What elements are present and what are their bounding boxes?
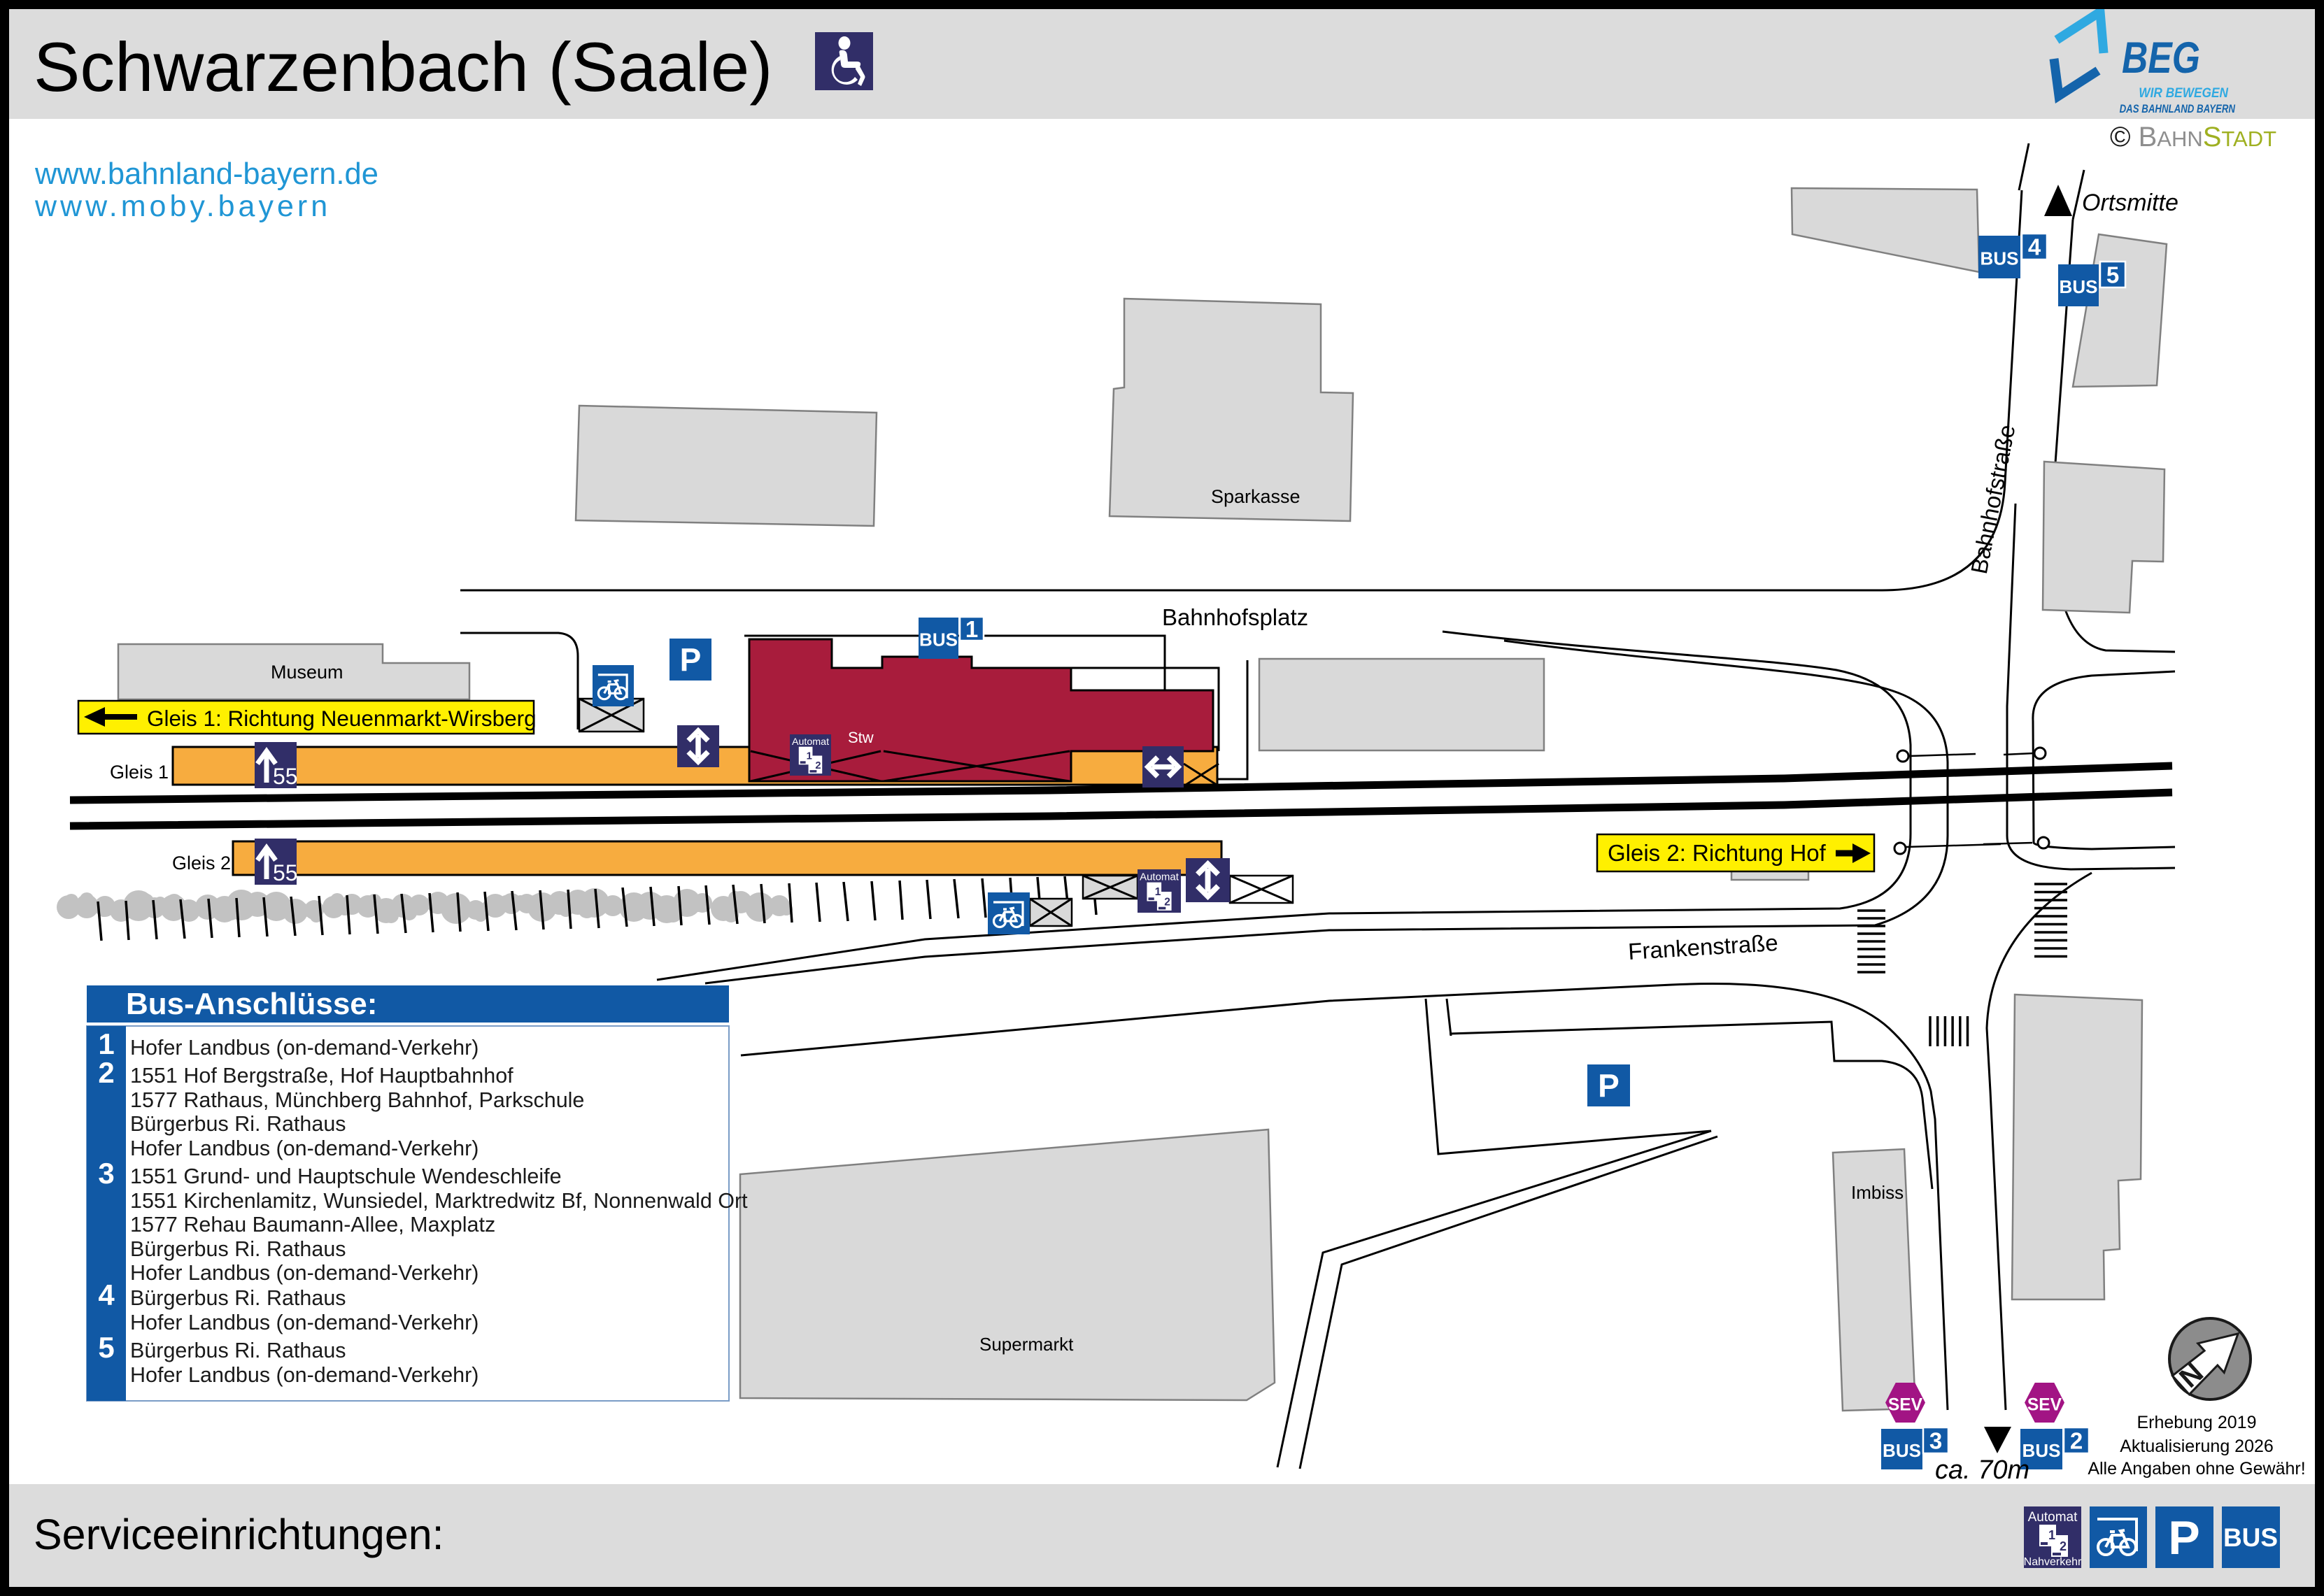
svg-text:1: 1: [1155, 886, 1161, 898]
svg-text:4: 4: [98, 1278, 115, 1311]
svg-text:© BAHNSTADT: © BAHNSTADT: [2110, 122, 2276, 152]
svg-text:Museum: Museum: [271, 662, 343, 683]
svg-text:Hofer Landbus (on-demand-Verke: Hofer Landbus (on-demand-Verkehr): [130, 1036, 479, 1060]
svg-text:Gleis 2: Richtung Hof: Gleis 2: Richtung Hof: [1608, 840, 1827, 866]
svg-text:1577 Rathaus, Münchberg Bahnho: 1577 Rathaus, Münchberg Bahnhof, Parksch…: [130, 1088, 584, 1112]
svg-text:Erhebung 2019: Erhebung 2019: [2137, 1413, 2257, 1432]
svg-text:Supermarkt: Supermarkt: [979, 1334, 1074, 1355]
svg-text:BUS: BUS: [1883, 1440, 1921, 1461]
svg-text:DAS BAHNLAND BAYERN: DAS BAHNLAND BAYERN: [2120, 103, 2236, 116]
svg-text:2: 2: [815, 760, 821, 771]
svg-text:Bürgerbus Ri. Rathaus: Bürgerbus Ri. Rathaus: [130, 1339, 346, 1362]
svg-text:Bürgerbus Ri. Rathaus: Bürgerbus Ri. Rathaus: [130, 1112, 346, 1136]
svg-text:1577 Rehau Baumann-Allee, Maxp: 1577 Rehau Baumann-Allee, Maxplatz: [130, 1213, 495, 1237]
svg-text:Schwarzenbach (Saale): Schwarzenbach (Saale): [34, 29, 772, 106]
svg-text:1: 1: [98, 1027, 114, 1060]
svg-text:Hofer Landbus (on-demand-Verke: Hofer Landbus (on-demand-Verkehr): [130, 1261, 479, 1285]
svg-text:Gleis 1: Gleis 1: [110, 762, 169, 783]
svg-text:Stw: Stw: [848, 729, 874, 746]
svg-text:Bürgerbus Ri. Rathaus: Bürgerbus Ri. Rathaus: [130, 1286, 346, 1310]
svg-text:55: 55: [273, 860, 298, 885]
svg-text:Bus-Anschlüsse:: Bus-Anschlüsse:: [126, 987, 377, 1021]
svg-text:Automat: Automat: [792, 736, 829, 748]
svg-text:Automat: Automat: [2028, 1510, 2078, 1525]
svg-text:www.bahnland-bayern.de: www.bahnland-bayern.de: [34, 157, 378, 191]
svg-text:Serviceeinrichtungen:: Serviceeinrichtungen:: [34, 1511, 444, 1558]
svg-text:Nahverkehr: Nahverkehr: [2024, 1556, 2082, 1568]
svg-text:SEV: SEV: [1888, 1395, 1923, 1414]
svg-text:Bahnhofsplatz: Bahnhofsplatz: [1162, 604, 1308, 630]
svg-text:1551 Kirchenlamitz, Wunsiedel,: 1551 Kirchenlamitz, Wunsiedel, Marktredw…: [130, 1189, 748, 1213]
svg-text:Sparkasse: Sparkasse: [1211, 486, 1301, 507]
svg-text:3: 3: [1929, 1428, 1942, 1454]
svg-text:BUS: BUS: [2060, 276, 2098, 297]
svg-text:1551 Hof Bergstraße, Hof Haupt: 1551 Hof Bergstraße, Hof Hauptbahnhof: [130, 1064, 513, 1088]
svg-text:Aktualisierung 2026: Aktualisierung 2026: [2120, 1437, 2274, 1456]
svg-text:Gleis 1: Richtung Neuenmarkt-W: Gleis 1: Richtung Neuenmarkt-Wirsberg: [147, 706, 537, 731]
svg-text:www.moby.bayern: www.moby.bayern: [34, 190, 331, 223]
svg-text:BEG: BEG: [2122, 34, 2200, 83]
svg-text:WIR BEWEGEN: WIR BEWEGEN: [2139, 85, 2229, 100]
svg-text:P: P: [680, 642, 702, 678]
svg-text:2: 2: [2060, 1539, 2067, 1553]
svg-text:1: 1: [965, 616, 978, 642]
svg-text:P: P: [2168, 1511, 2199, 1565]
svg-text:3: 3: [98, 1157, 114, 1190]
svg-text:SEV: SEV: [2027, 1395, 2062, 1414]
svg-text:2: 2: [1164, 897, 1170, 909]
svg-text:Imbiss: Imbiss: [1851, 1182, 1904, 1203]
svg-text:Ortsmitte: Ortsmitte: [2082, 190, 2178, 216]
svg-text:1: 1: [807, 750, 812, 762]
svg-text:Automat: Automat: [1140, 871, 1179, 883]
svg-text:5: 5: [98, 1331, 114, 1364]
svg-text:1: 1: [2048, 1528, 2055, 1542]
svg-text:55: 55: [273, 764, 298, 789]
svg-text:Alle Angaben ohne Gewähr!: Alle Angaben ohne Gewähr!: [2088, 1459, 2305, 1479]
svg-text:BUS: BUS: [919, 629, 958, 650]
svg-text:2: 2: [2070, 1428, 2083, 1454]
svg-text:1551 Grund- und Hauptschule We: 1551 Grund- und Hauptschule Wendeschleif…: [130, 1164, 562, 1188]
svg-text:5: 5: [2106, 262, 2119, 288]
svg-text:Hofer Landbus (on-demand-Verke: Hofer Landbus (on-demand-Verkehr): [130, 1311, 479, 1334]
svg-text:Bürgerbus Ri. Rathaus: Bürgerbus Ri. Rathaus: [130, 1237, 346, 1261]
svg-text:BUS: BUS: [1981, 248, 2019, 269]
svg-text:BUS: BUS: [2223, 1523, 2278, 1552]
svg-text:P: P: [1598, 1068, 1620, 1104]
svg-text:4: 4: [2028, 234, 2041, 260]
svg-text:Hofer Landbus (on-demand-Verke: Hofer Landbus (on-demand-Verkehr): [130, 1363, 479, 1387]
svg-text:Gleis 2: Gleis 2: [172, 853, 231, 874]
svg-text:Hofer Landbus (on-demand-Verke: Hofer Landbus (on-demand-Verkehr): [130, 1137, 479, 1160]
svg-text:2: 2: [98, 1056, 114, 1089]
svg-text:ca. 70m: ca. 70m: [1935, 1455, 2029, 1485]
